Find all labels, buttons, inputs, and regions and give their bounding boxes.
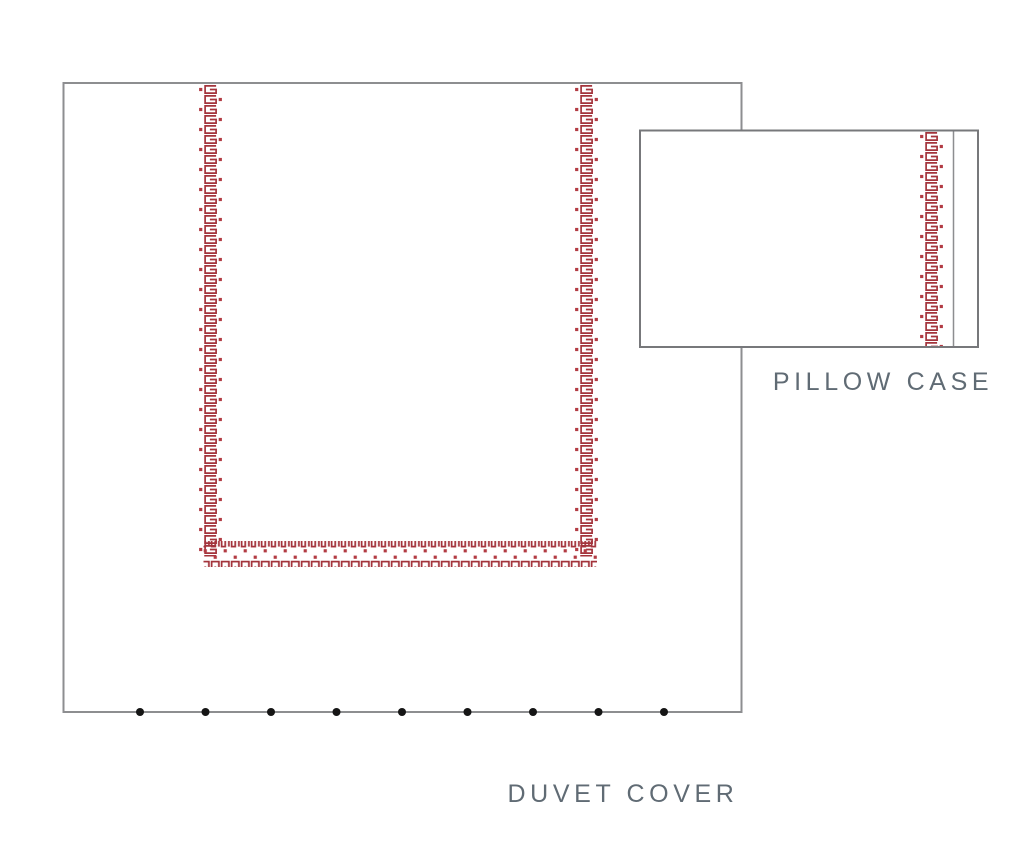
greek-key-border-pillow (919, 132, 945, 347)
button-dot (529, 708, 537, 716)
greek-key-border-bottom (204, 541, 598, 567)
button-dot (464, 708, 472, 716)
greek-key-border-right (574, 85, 600, 557)
pillow-case-label: PILLOW CASE (733, 368, 1024, 397)
button-dot (660, 708, 668, 716)
button-dot (136, 708, 144, 716)
button-dot (267, 708, 275, 716)
duvet-cover-label: DUVET COVER (473, 780, 773, 809)
button-dot (595, 708, 603, 716)
button-dot (202, 708, 210, 716)
bedding-product-diagram: PILLOW CASE DUVET COVER (0, 0, 1024, 867)
bedding-diagram-canvas (0, 0, 1024, 867)
button-dot (398, 708, 406, 716)
greek-key-border-left (198, 85, 224, 557)
button-dot (333, 708, 341, 716)
